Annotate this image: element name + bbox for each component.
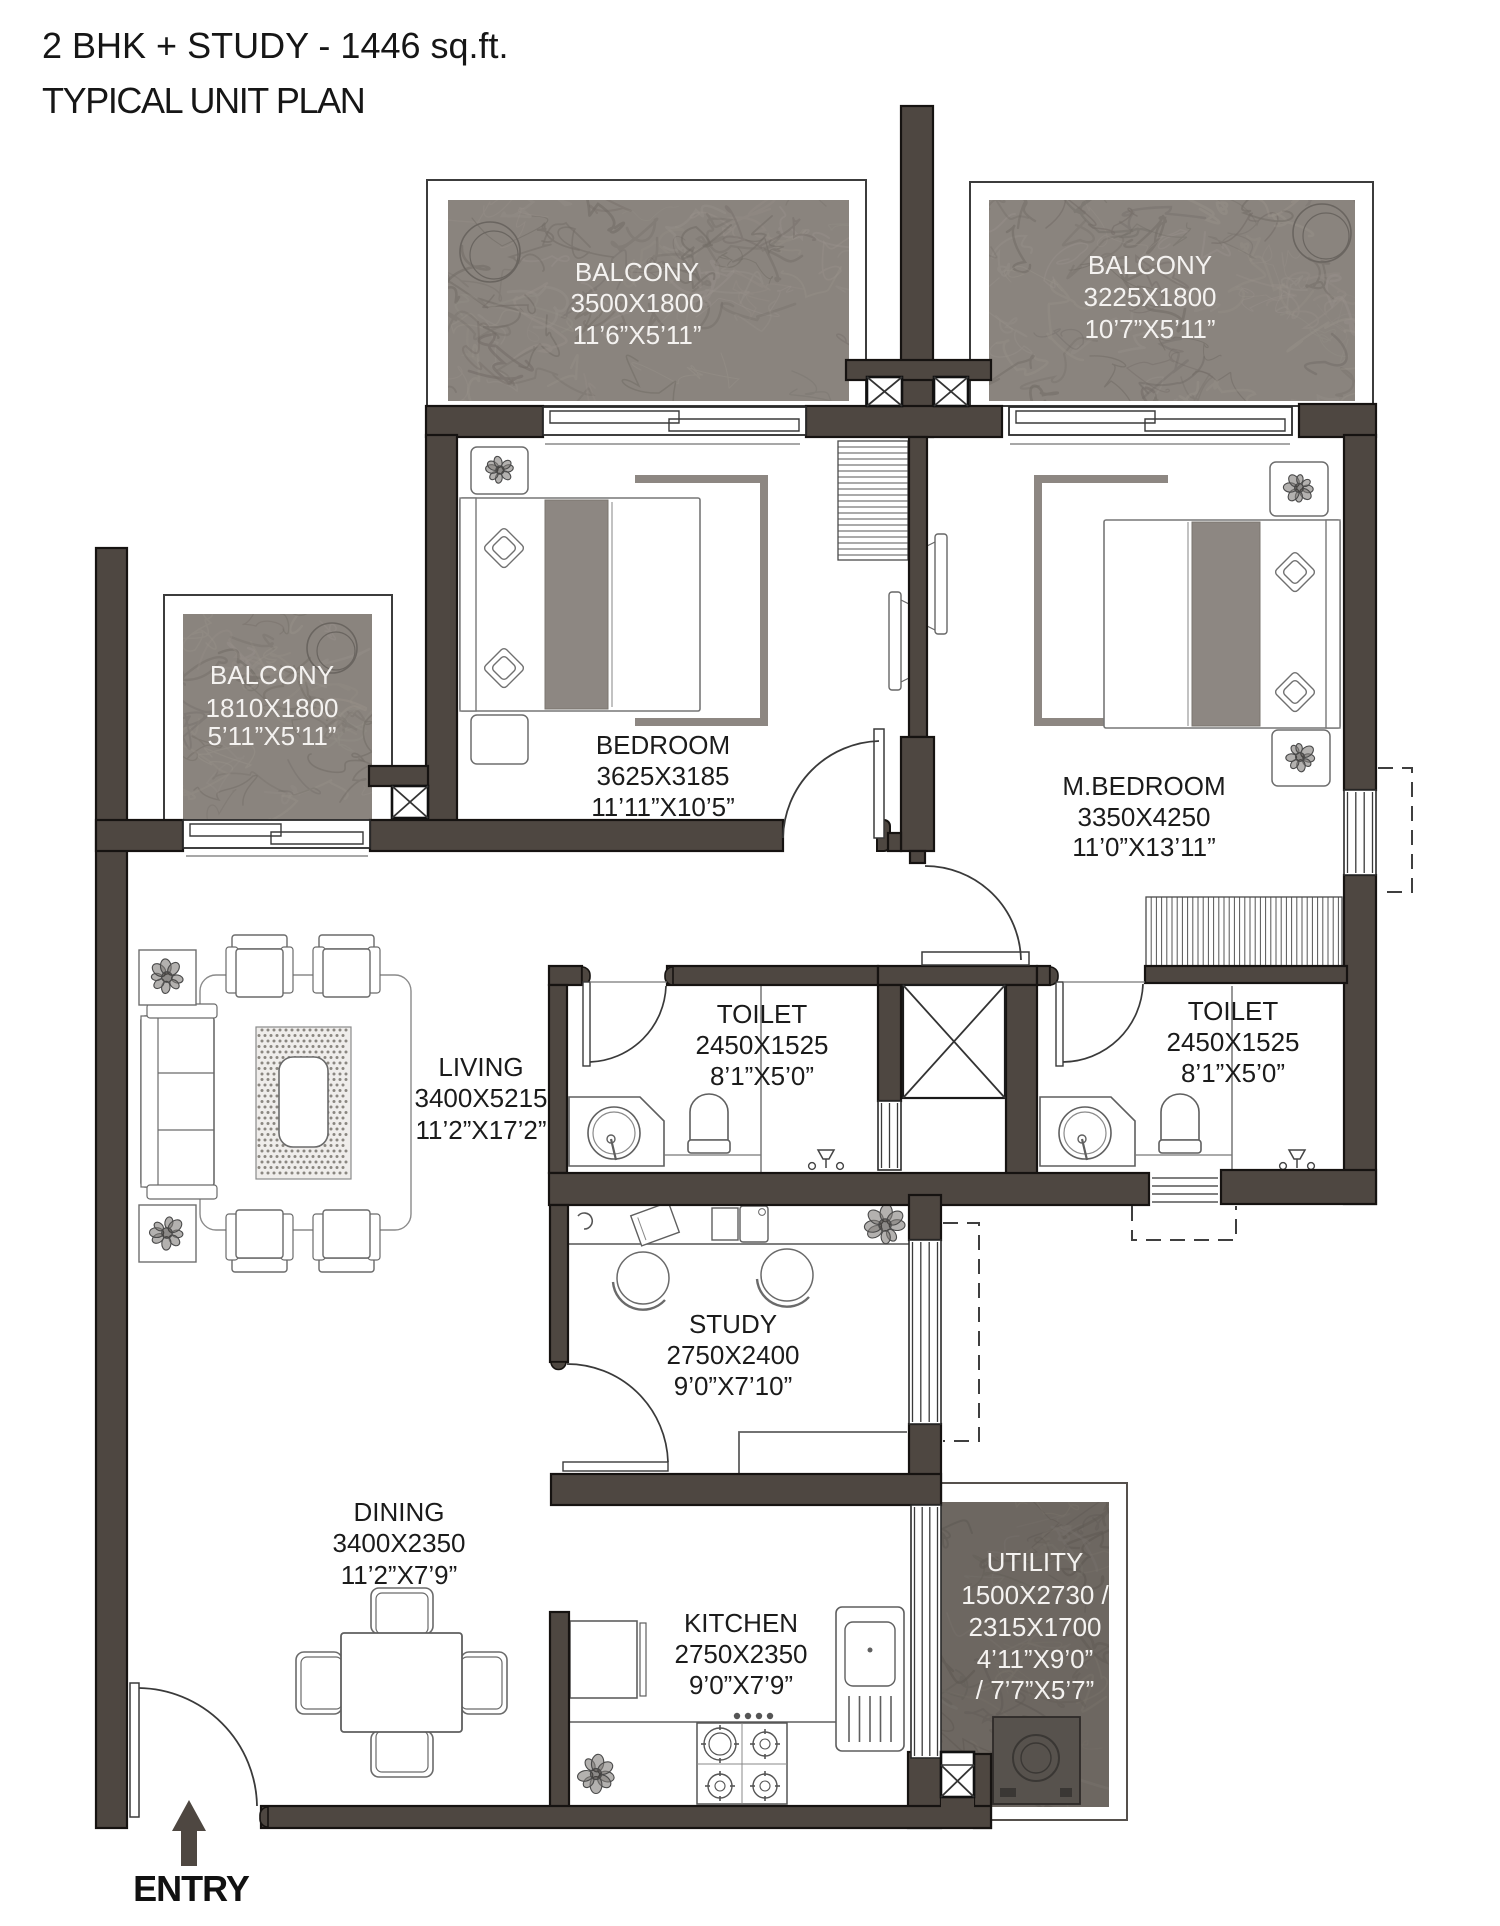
svg-text:8’1”X5’0”: 8’1”X5’0” [710, 1061, 814, 1091]
svg-text:2 BHK + STUDY - 1446 sq.ft.: 2 BHK + STUDY - 1446 sq.ft. [42, 25, 509, 66]
svg-text:4’11”X9’0”: 4’11”X9’0” [977, 1644, 1094, 1674]
svg-text:LIVING: LIVING [438, 1052, 523, 1082]
svg-text:BEDROOM: BEDROOM [596, 730, 730, 760]
svg-text:1500X2730 /: 1500X2730 / [961, 1580, 1109, 1610]
svg-text:10’7”X5’11”: 10’7”X5’11” [1084, 314, 1215, 344]
svg-text:KITCHEN: KITCHEN [684, 1608, 798, 1638]
svg-text:3625X3185: 3625X3185 [596, 761, 729, 791]
svg-text:BALCONY: BALCONY [1088, 250, 1212, 280]
svg-text:11’11”X10’5”: 11’11”X10’5” [591, 792, 735, 822]
svg-text:TYPICAL UNIT PLAN: TYPICAL UNIT PLAN [42, 80, 364, 121]
svg-text:1810X1800: 1810X1800 [205, 693, 338, 723]
svg-text:3225X1800: 3225X1800 [1083, 282, 1216, 312]
svg-text:3500X1800: 3500X1800 [570, 288, 703, 318]
svg-text:8’1”X5’0”: 8’1”X5’0” [1181, 1058, 1285, 1088]
svg-text:BALCONY: BALCONY [210, 660, 334, 690]
svg-text:3350X4250: 3350X4250 [1077, 802, 1210, 832]
svg-text:2750X2400: 2750X2400 [666, 1340, 799, 1370]
svg-text:9’0”X7’9”: 9’0”X7’9” [689, 1670, 793, 1700]
svg-text:3400X2350: 3400X2350 [332, 1528, 465, 1558]
svg-text:BALCONY: BALCONY [575, 257, 699, 287]
svg-text:M.BEDROOM: M.BEDROOM [1062, 771, 1225, 801]
svg-text:11’0”X13’11”: 11’0”X13’11” [1072, 832, 1216, 862]
svg-text:UTILITY: UTILITY [987, 1547, 1084, 1577]
svg-text:2315X1700: 2315X1700 [968, 1612, 1101, 1642]
svg-text:11’2”X7’9”: 11’2”X7’9” [341, 1560, 458, 1590]
svg-text:11’6”X5’11”: 11’6”X5’11” [572, 320, 701, 350]
svg-text:2450X1525: 2450X1525 [1166, 1027, 1299, 1057]
svg-text:2750X2350: 2750X2350 [674, 1639, 807, 1669]
svg-text:TOILET: TOILET [717, 999, 808, 1029]
svg-text:3400X5215: 3400X5215 [414, 1083, 547, 1113]
svg-text:STUDY: STUDY [689, 1309, 777, 1339]
svg-text:11’2”X17’2”: 11’2”X17’2” [415, 1115, 546, 1145]
svg-text:TOILET: TOILET [1188, 996, 1279, 1026]
svg-text:5’11”X5’11”: 5’11”X5’11” [207, 721, 336, 751]
svg-text:DINING: DINING [354, 1497, 445, 1527]
svg-text:/ 7’7”X5’7”: / 7’7”X5’7” [976, 1675, 1095, 1705]
svg-text:9’0”X7’10”: 9’0”X7’10” [674, 1371, 793, 1401]
svg-text:ENTRY: ENTRY [133, 1868, 250, 1909]
svg-text:2450X1525: 2450X1525 [695, 1030, 828, 1060]
